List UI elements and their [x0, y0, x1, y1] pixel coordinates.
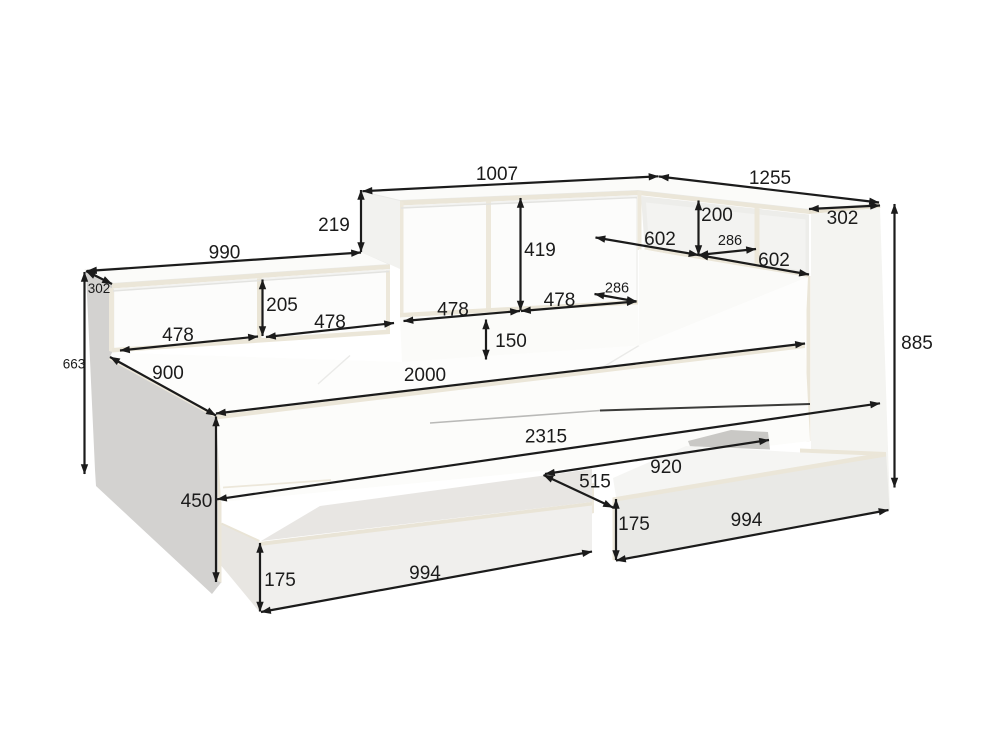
svg-text:990: 990 — [209, 243, 241, 264]
svg-text:602: 602 — [644, 229, 676, 250]
svg-text:994: 994 — [731, 510, 763, 531]
svg-text:1255: 1255 — [749, 168, 791, 189]
svg-text:219: 219 — [318, 215, 350, 236]
svg-text:175: 175 — [618, 514, 650, 535]
svg-text:478: 478 — [437, 300, 469, 321]
svg-text:200: 200 — [701, 205, 733, 226]
svg-text:515: 515 — [579, 472, 611, 493]
svg-text:478: 478 — [314, 312, 346, 333]
svg-text:286: 286 — [718, 233, 742, 249]
svg-text:478: 478 — [544, 290, 576, 311]
svg-text:994: 994 — [409, 563, 441, 584]
svg-text:885: 885 — [901, 333, 933, 354]
svg-text:302: 302 — [88, 281, 111, 296]
svg-text:302: 302 — [827, 208, 859, 229]
svg-text:150: 150 — [495, 331, 527, 352]
svg-text:663: 663 — [63, 357, 86, 372]
svg-text:175: 175 — [264, 570, 296, 591]
svg-text:920: 920 — [650, 457, 682, 478]
svg-text:900: 900 — [152, 363, 184, 384]
svg-text:478: 478 — [162, 325, 194, 346]
svg-text:602: 602 — [758, 250, 790, 271]
svg-text:286: 286 — [605, 281, 629, 297]
svg-text:2315: 2315 — [525, 427, 567, 448]
svg-text:450: 450 — [181, 491, 213, 512]
svg-text:2000: 2000 — [404, 365, 446, 386]
svg-text:419: 419 — [524, 240, 556, 261]
svg-text:205: 205 — [266, 295, 298, 316]
svg-text:1007: 1007 — [476, 164, 518, 185]
